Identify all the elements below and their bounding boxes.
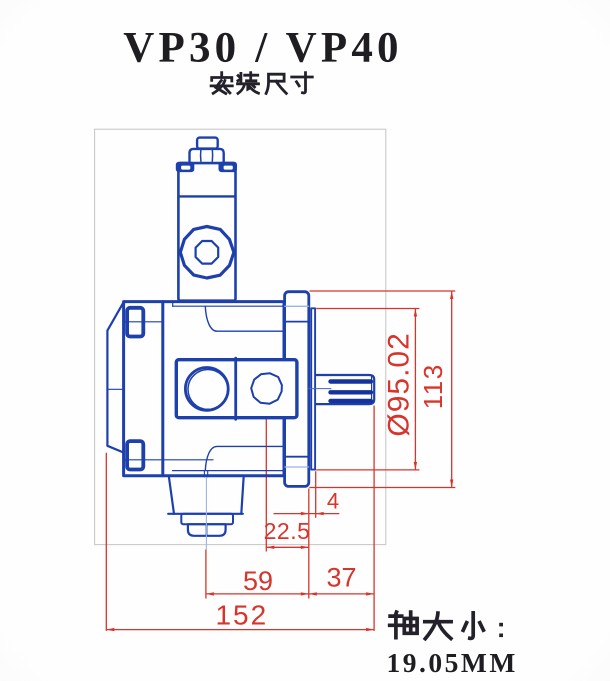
- svg-text:113: 113: [418, 363, 448, 409]
- svg-text:Ø95.02: Ø95.02: [382, 332, 415, 436]
- svg-text:19.05MM: 19.05MM: [387, 647, 518, 678]
- svg-text:VP30 / VP40: VP30 / VP40: [123, 25, 403, 72]
- svg-text:37: 37: [326, 563, 356, 593]
- svg-text:4: 4: [327, 489, 339, 514]
- svg-text:59: 59: [243, 566, 273, 596]
- svg-text:152: 152: [215, 600, 268, 631]
- svg-text:22.5: 22.5: [264, 518, 311, 544]
